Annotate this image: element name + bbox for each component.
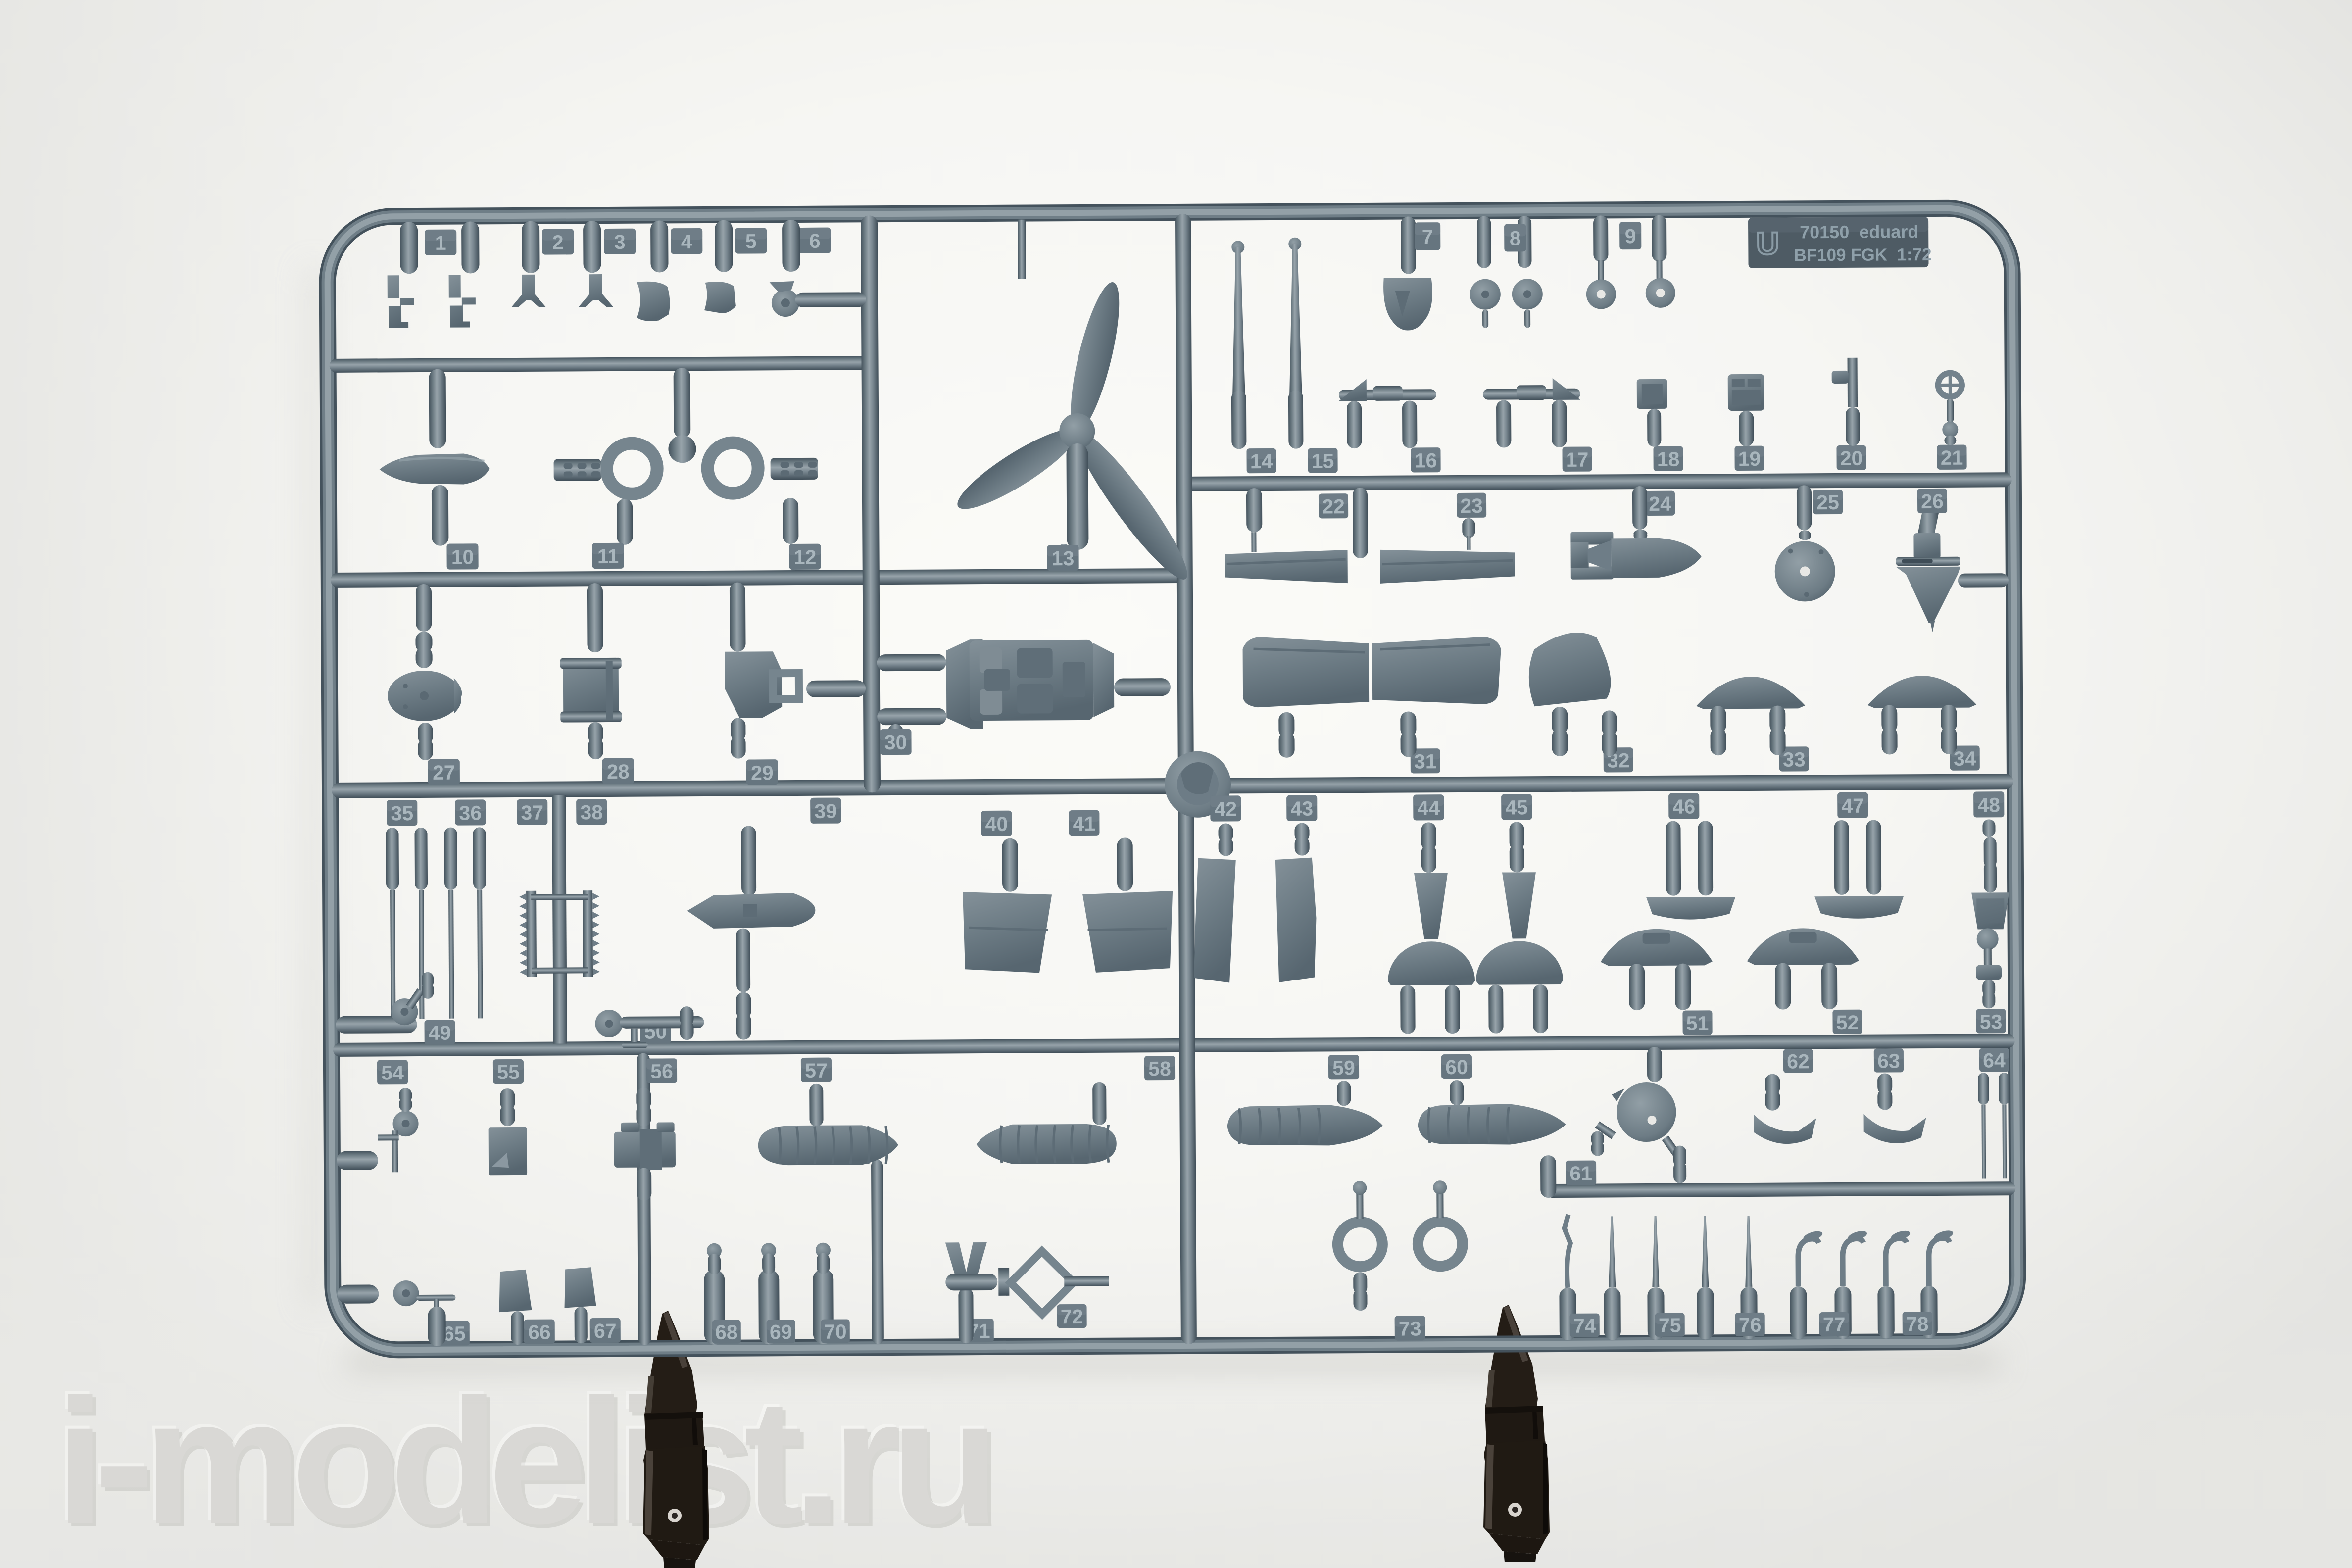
svg-text:57: 57 [805, 1059, 828, 1082]
svg-text:45: 45 [1505, 796, 1528, 819]
svg-text:18: 18 [1657, 448, 1680, 471]
svg-text:27: 27 [433, 761, 455, 784]
svg-text:48: 48 [1977, 793, 2000, 816]
svg-text:44: 44 [1417, 796, 1440, 819]
svg-text:25: 25 [1816, 491, 1839, 514]
svg-text:2: 2 [552, 231, 564, 253]
svg-text:6: 6 [809, 230, 821, 252]
svg-text:31: 31 [1414, 750, 1437, 773]
svg-text:7: 7 [1422, 225, 1433, 248]
svg-text:4: 4 [681, 230, 692, 253]
svg-text:59: 59 [1332, 1056, 1355, 1079]
svg-text:54: 54 [381, 1061, 404, 1084]
svg-text:73: 73 [1399, 1317, 1421, 1340]
svg-text:64: 64 [1983, 1049, 2006, 1072]
svg-text:12: 12 [794, 546, 817, 569]
svg-text:11: 11 [597, 545, 619, 568]
svg-text:U: U [1756, 226, 1779, 261]
svg-text:46: 46 [1672, 795, 1695, 818]
svg-text:52: 52 [1836, 1011, 1859, 1034]
svg-text:i-modelist.ru: i-modelist.ru [55, 1362, 989, 1561]
svg-text:24: 24 [1649, 492, 1671, 515]
svg-text:35: 35 [391, 802, 413, 825]
svg-text:40: 40 [985, 813, 1008, 835]
svg-text:56: 56 [650, 1060, 673, 1082]
svg-text:75: 75 [1659, 1314, 1681, 1337]
svg-text:69: 69 [770, 1321, 792, 1343]
svg-text:26: 26 [1921, 490, 1944, 513]
svg-text:14: 14 [1250, 450, 1273, 473]
svg-text:58: 58 [1148, 1057, 1171, 1080]
svg-text:5: 5 [745, 230, 757, 252]
svg-text:68: 68 [715, 1321, 738, 1344]
svg-text:22: 22 [1322, 495, 1345, 518]
svg-text:13: 13 [1052, 547, 1075, 570]
svg-text:20: 20 [1840, 447, 1863, 470]
svg-text:66: 66 [528, 1321, 551, 1344]
svg-text:70150 eduard: 70150 eduard [1800, 221, 1918, 242]
svg-text:42: 42 [1214, 797, 1237, 820]
svg-text:60: 60 [1445, 1056, 1468, 1078]
svg-text:41: 41 [1073, 812, 1095, 835]
svg-text:67: 67 [594, 1320, 617, 1342]
svg-text:74: 74 [1573, 1315, 1596, 1337]
svg-text:49: 49 [429, 1022, 451, 1044]
svg-text:21: 21 [1941, 446, 1963, 469]
svg-text:17: 17 [1566, 448, 1589, 471]
svg-text:38: 38 [580, 801, 603, 824]
svg-text:53: 53 [1980, 1010, 2003, 1033]
svg-text:43: 43 [1290, 797, 1313, 820]
svg-text:55: 55 [497, 1061, 520, 1083]
svg-text:72: 72 [1061, 1305, 1083, 1328]
svg-text:33: 33 [1783, 748, 1806, 771]
svg-text:65: 65 [443, 1323, 466, 1345]
svg-text:9: 9 [1625, 225, 1636, 247]
svg-text:30: 30 [884, 731, 907, 754]
svg-text:78: 78 [1906, 1313, 1929, 1335]
svg-text:47: 47 [1841, 794, 1864, 817]
svg-text:19: 19 [1738, 447, 1761, 470]
svg-text:77: 77 [1823, 1313, 1846, 1336]
svg-text:16: 16 [1415, 449, 1437, 472]
svg-text:23: 23 [1460, 494, 1483, 517]
svg-text:76: 76 [1739, 1314, 1762, 1336]
svg-text:8: 8 [1510, 227, 1521, 249]
svg-text:10: 10 [451, 545, 474, 568]
svg-text:29: 29 [751, 761, 774, 784]
svg-text:28: 28 [607, 760, 630, 783]
svg-text:51: 51 [1686, 1012, 1709, 1034]
svg-text:1: 1 [435, 232, 446, 254]
svg-text:61: 61 [1569, 1162, 1592, 1185]
svg-text:63: 63 [1877, 1049, 1900, 1072]
svg-text:70: 70 [824, 1320, 847, 1343]
svg-text:62: 62 [1787, 1050, 1810, 1073]
svg-text:BF109 FGK 1:72: BF109 FGK 1:72 [1794, 245, 1931, 265]
svg-text:39: 39 [814, 800, 837, 823]
svg-text:36: 36 [459, 801, 482, 824]
svg-text:34: 34 [1954, 747, 1976, 770]
svg-text:15: 15 [1312, 449, 1334, 472]
svg-text:37: 37 [521, 801, 543, 824]
svg-text:3: 3 [614, 231, 626, 253]
